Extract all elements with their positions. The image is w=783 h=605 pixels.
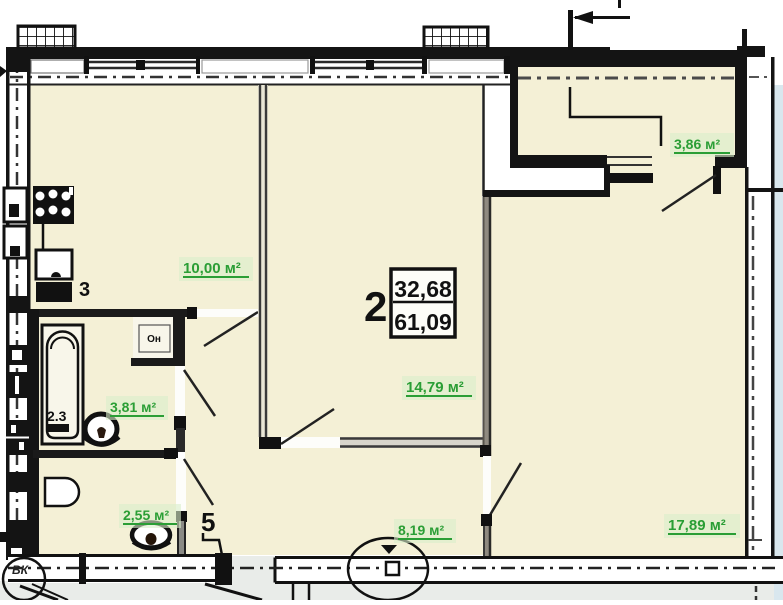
- svg-text:3,81 м²: 3,81 м²: [110, 399, 156, 415]
- svg-text:17,89 м²: 17,89 м²: [668, 517, 726, 534]
- svg-text:14,79 м²: 14,79 м²: [406, 379, 464, 396]
- svg-text:32,68: 32,68: [394, 276, 452, 302]
- svg-text:10,00 м²: 10,00 м²: [183, 260, 241, 277]
- svg-text:61,09: 61,09: [394, 309, 452, 335]
- svg-text:3,86 м²: 3,86 м²: [674, 136, 720, 152]
- svg-text:5: 5: [201, 507, 215, 537]
- svg-text:ВК: ВК: [12, 563, 30, 577]
- svg-text:2,55 м²: 2,55 м²: [123, 507, 169, 523]
- svg-text:2: 2: [364, 283, 387, 330]
- svg-text:3: 3: [79, 279, 90, 301]
- svg-text:8,19 м²: 8,19 м²: [398, 522, 444, 538]
- svg-text:Он: Он: [147, 334, 161, 345]
- svg-text:2.3: 2.3: [47, 408, 67, 424]
